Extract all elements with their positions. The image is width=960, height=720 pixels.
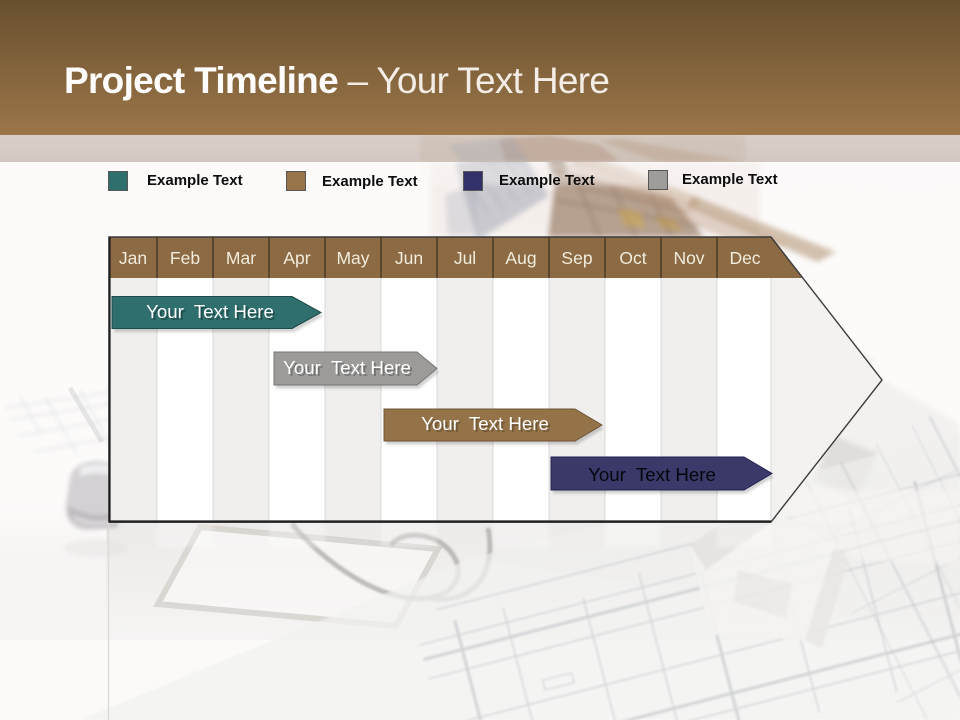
svg-text:Mar: Mar [226,248,256,268]
svg-text:Dec: Dec [729,248,760,268]
svg-text:Feb: Feb [170,248,200,268]
svg-text:Apr: Apr [283,248,310,268]
svg-text:Jul: Jul [454,248,476,268]
svg-text:Oct: Oct [619,248,646,268]
svg-text:Nov: Nov [673,248,704,268]
svg-text:Your Text Here: Your Text Here [421,413,549,434]
svg-text:Your Text Here: Your Text Here [283,357,411,378]
svg-text:May: May [336,248,369,268]
svg-text:Jun: Jun [395,248,423,268]
svg-text:Your Text Here: Your Text Here [146,301,274,322]
svg-text:Jan: Jan [119,248,147,268]
svg-text:Aug: Aug [505,248,536,268]
svg-text:Your Text Here: Your Text Here [588,464,716,485]
svg-text:Sep: Sep [561,248,592,268]
